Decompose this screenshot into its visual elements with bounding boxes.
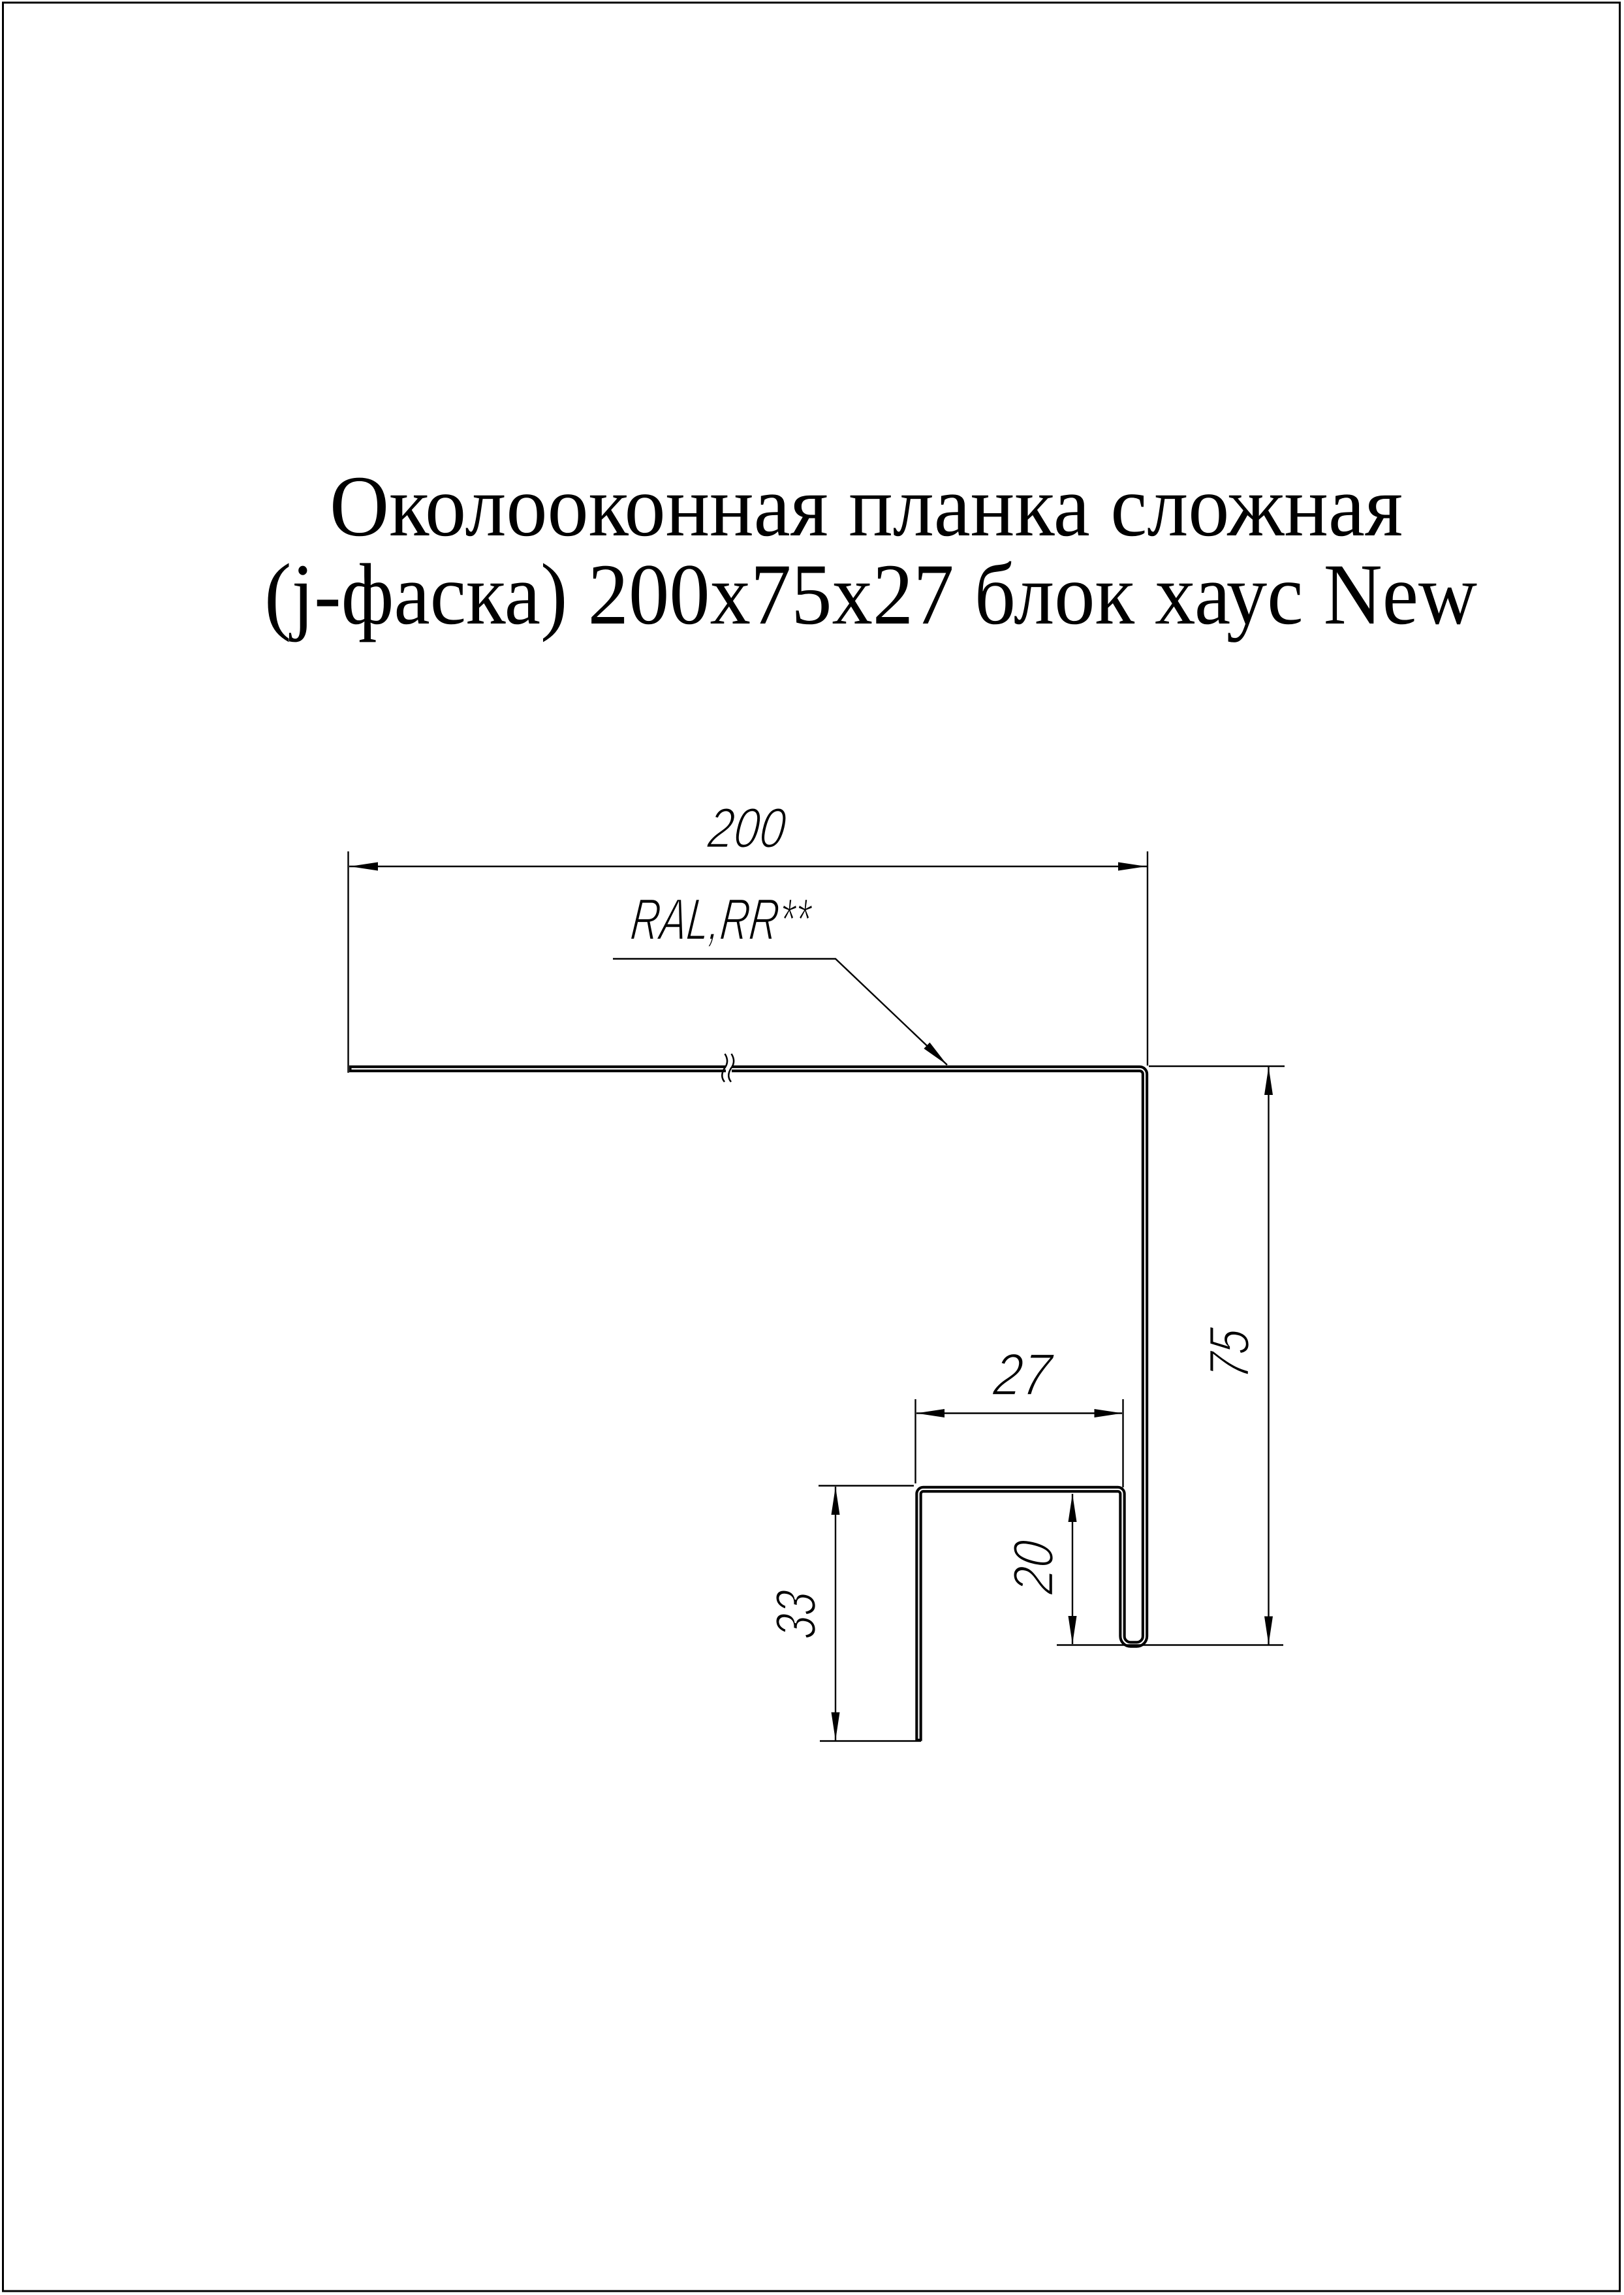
svg-text:75: 75	[1198, 1325, 1261, 1382]
svg-text:20: 20	[1002, 1538, 1065, 1597]
svg-text:RAL,RR**: RAL,RR**	[628, 887, 815, 953]
svg-text:200: 200	[705, 797, 789, 860]
svg-text:27: 27	[990, 1342, 1056, 1408]
svg-text:Околооконная планка сложная: Околооконная планка сложная	[330, 458, 1403, 554]
svg-text:(j-фаска) 200х75х27 блок хаус: (j-фаска) 200х75х27 блок хаус New	[264, 546, 1477, 642]
svg-text:33: 33	[764, 1588, 828, 1641]
